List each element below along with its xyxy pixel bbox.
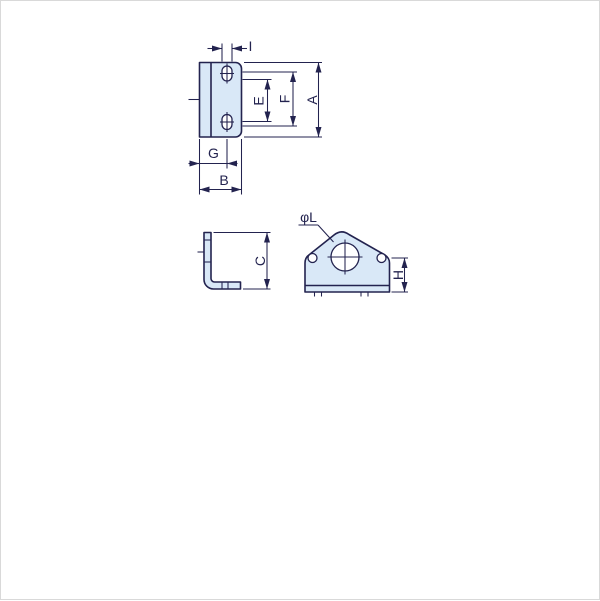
callout-phi-L: φL [299, 209, 334, 242]
dim-label-B: B [219, 172, 228, 188]
dim-label-F: F [277, 95, 293, 104]
dim-label-H: H [390, 270, 406, 280]
top-view: I E F A [189, 38, 323, 195]
dim-label-A: A [304, 95, 320, 105]
dim-label-C: C [252, 256, 268, 266]
dimension-E: E [243, 80, 272, 122]
angle-profile-outline [204, 233, 241, 290]
drawing-canvas: I E F A [0, 0, 600, 600]
front-view: φL H [299, 209, 409, 297]
leader-line [318, 225, 334, 242]
technical-drawing-svg: I E F A [1, 1, 600, 601]
side-hole-right [377, 254, 386, 263]
dim-label-I: I [249, 38, 253, 54]
side-view: C [198, 233, 271, 290]
side-hole-left [308, 254, 317, 263]
dimension-I: I [208, 38, 253, 62]
dim-label-phi-L: φL [300, 209, 317, 225]
dim-label-G: G [208, 145, 219, 161]
dimension-G: G [189, 139, 242, 195]
dimension-C: C [214, 233, 271, 290]
dimension-H: H [390, 258, 408, 292]
dimension-B: B [200, 172, 242, 190]
dim-label-E: E [251, 96, 267, 105]
